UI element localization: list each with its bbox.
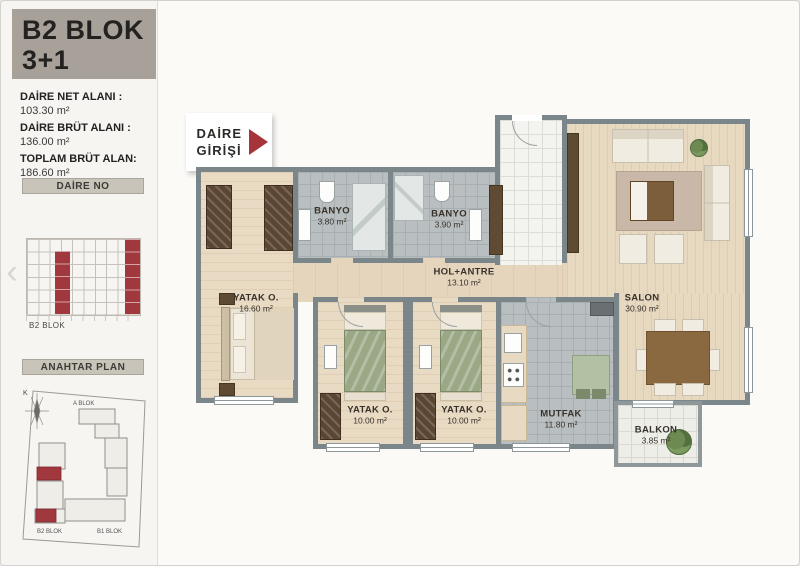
north-label: K <box>23 390 28 397</box>
plant <box>690 139 708 157</box>
net-area-label: DAİRE NET ALANI : <box>20 90 155 104</box>
kitchen-chair <box>592 389 606 399</box>
room-label-bath2: BANYO 3.90 m² <box>431 209 467 230</box>
entrance-arrow-icon <box>249 129 268 155</box>
wardrobe <box>206 185 232 249</box>
highlighted-unit-column <box>125 239 140 314</box>
kitchen-cabinet <box>501 405 527 441</box>
entrance-label-card: DAİRE GİRİŞİ <box>186 113 272 171</box>
highlighted-block-section <box>36 509 56 522</box>
elevation-caption: B2 BLOK <box>29 321 65 330</box>
window <box>744 327 753 393</box>
single-bed <box>344 330 386 392</box>
gross-area-label: DAİRE BRÜT ALANI : <box>20 121 155 135</box>
door-opening <box>562 263 567 297</box>
room-label-salon: SALON 30.90 m² <box>625 293 660 314</box>
sofa <box>612 129 684 163</box>
elevation-grid-legs <box>26 314 139 321</box>
sofa <box>704 165 730 241</box>
room-label-hall: HOL+ANTRE 13.10 m² <box>433 267 494 288</box>
apartment-floorplan: YATAK O. 16.60 m² BANYO 3.80 m² BANYO 3.… <box>186 113 766 543</box>
desk <box>419 345 432 369</box>
room-label-balcony: BALKON 3.85 m² <box>635 425 677 446</box>
bed-foot <box>440 392 482 401</box>
window <box>326 443 380 452</box>
floorplan-page: B2 BLOK 3+1 DAİRE NET ALANI : 103.30 m² … <box>0 0 800 566</box>
block-title: B2 BLOK <box>22 15 156 45</box>
dining-table <box>646 331 710 385</box>
single-bed <box>440 330 482 392</box>
sink <box>469 209 482 241</box>
anahtar-plan-header: ANAHTAR PLAN <box>22 359 144 375</box>
kitchen-sink <box>504 333 522 353</box>
b2-blok-label: B2 BLOK <box>37 529 62 535</box>
daire-no-header: DAİRE NO <box>22 178 144 194</box>
bed-foot <box>344 392 386 401</box>
unit-type: 3+1 <box>22 45 156 75</box>
room-label-bedroom2: YATAK O. 10.00 m² <box>441 405 487 426</box>
coffee-table <box>630 181 674 221</box>
wardrobe <box>415 393 436 440</box>
room-label-master: YATAK O. 16.60 m² <box>233 293 279 314</box>
compass-icon <box>25 393 49 429</box>
highlighted-unit-column <box>55 251 70 314</box>
window <box>744 169 753 237</box>
block-header: B2 BLOK 3+1 <box>12 9 156 79</box>
dining-chair <box>709 349 720 371</box>
door-opening <box>331 258 353 263</box>
tv-unit <box>567 133 579 253</box>
sink <box>298 209 311 241</box>
balcony-door <box>632 400 674 408</box>
door-opening <box>293 263 298 293</box>
kitchen-appliance <box>590 302 614 316</box>
kitchen-chair <box>576 389 590 399</box>
room-label-bath1: BANYO 3.80 m² <box>314 206 350 227</box>
window <box>420 443 474 452</box>
shower <box>352 183 386 251</box>
net-area-value: 103.30 m² <box>20 104 155 118</box>
highlighted-block-section <box>37 467 61 480</box>
pillow <box>233 313 246 340</box>
area-stats: DAİRE NET ALANI : 103.30 m² DAİRE BRÜT A… <box>20 87 155 182</box>
b1-blok-label: B1 BLOK <box>97 529 122 535</box>
room-label-bedroom1: YATAK O. 10.00 m² <box>347 405 393 426</box>
pillow <box>233 346 246 373</box>
toilet <box>434 181 450 202</box>
gross-area-value: 136.00 m² <box>20 135 155 149</box>
chevron-left-icon[interactable]: ‹ <box>1 253 23 293</box>
building-footprints <box>35 409 127 523</box>
total-gross-label: TOPLAM BRÜT ALAN: <box>20 152 155 166</box>
building-elevation-grid <box>26 238 141 316</box>
armchair <box>654 234 684 264</box>
shower <box>394 175 424 221</box>
closet <box>489 185 503 255</box>
desk <box>324 345 337 369</box>
bed-blanket <box>254 308 294 380</box>
nightstand <box>219 383 235 396</box>
door-opening <box>423 258 445 263</box>
room-label-kitchen: MUTFAK 11.80 m² <box>540 409 581 430</box>
entrance-label: DAİRE GİRİŞİ <box>197 125 242 159</box>
wardrobe <box>264 185 293 251</box>
armchair <box>619 234 647 264</box>
site-plan: K A BLOK B2 BLOK B1 BLOK <box>9 381 159 561</box>
a-blok-label: A BLOK <box>73 401 94 407</box>
bed-headboard <box>221 307 230 381</box>
window <box>512 443 570 452</box>
wardrobe <box>320 393 341 440</box>
stove <box>503 363 524 387</box>
window <box>214 396 274 405</box>
dining-chair <box>654 383 676 396</box>
toilet <box>319 181 335 203</box>
dining-chair <box>682 383 704 396</box>
